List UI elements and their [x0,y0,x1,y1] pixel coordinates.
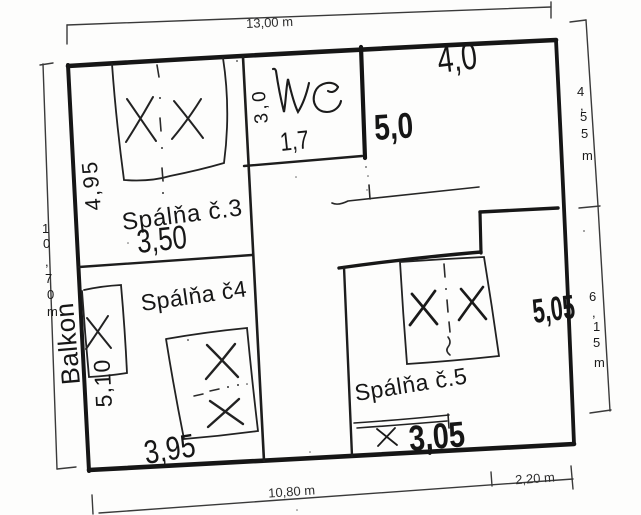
svg-text:7: 7 [45,271,52,286]
svg-text:m: m [582,148,593,163]
svg-text:m: m [594,355,605,370]
svg-text:13,00 m: 13,00 m [246,14,294,31]
svg-text:,: , [592,305,596,320]
svg-text:5: 5 [580,109,587,124]
svg-text:4: 4 [577,84,584,99]
svg-text:2,20 m: 2,20 m [515,470,556,488]
svg-text:4,0: 4,0 [435,36,479,82]
svg-text:5: 5 [581,126,588,141]
svg-text:Spálňa č.5: Spálňa č.5 [353,362,469,405]
svg-text:0: 0 [43,236,50,251]
svg-text:5,10: 5,10 [88,358,117,408]
svg-text:3,50: 3,50 [135,219,189,261]
svg-text:3,0: 3,0 [248,87,273,124]
svg-text:Spálňa č4: Spálňa č4 [139,275,248,316]
svg-text:0: 0 [47,287,54,302]
svg-text:3,05: 3,05 [407,413,466,459]
svg-text:5: 5 [593,335,600,350]
svg-text:5,0: 5,0 [373,105,415,148]
svg-text:6: 6 [589,289,596,304]
svg-text:,: , [45,254,49,269]
svg-text:1: 1 [593,319,600,334]
svg-text:1,7: 1,7 [279,125,311,157]
svg-text:5,05: 5,05 [530,288,577,331]
svg-text:1: 1 [42,221,49,236]
svg-text:4,95: 4,95 [77,159,106,212]
